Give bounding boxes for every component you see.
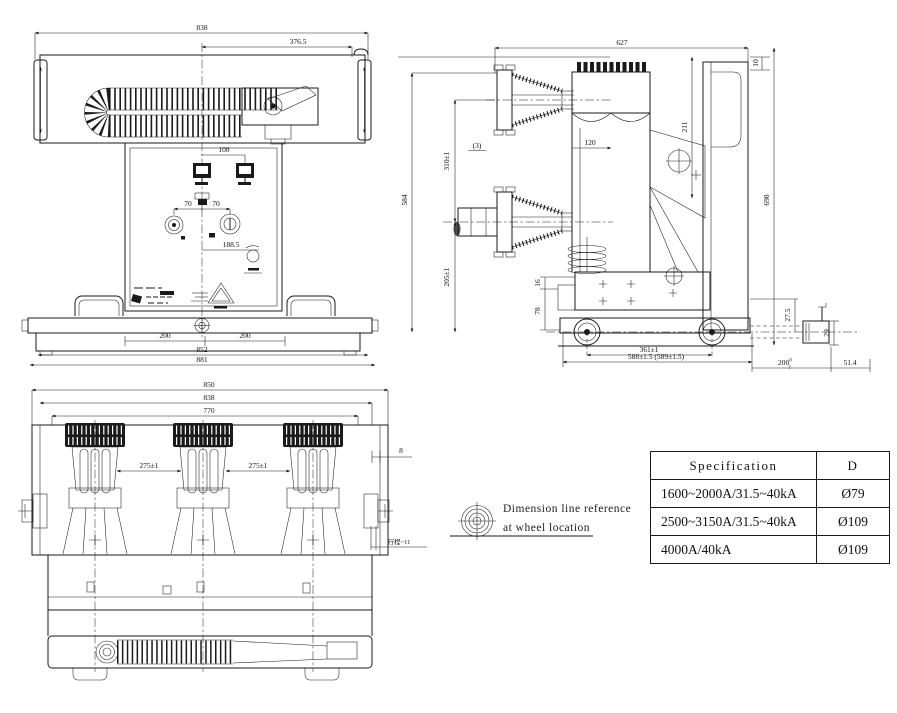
bottom-handle-right: [305, 668, 339, 680]
dim-205: 205±1: [442, 267, 451, 286]
dim-881: 881: [196, 355, 208, 364]
bottom-view-drawing: 850 838 770: [13, 380, 433, 713]
spec-table: Specification D 1600~2000A/31.5~40kA Ø79…: [650, 451, 890, 564]
dim-852: 852: [196, 345, 208, 354]
pole-assembly-3: [281, 420, 345, 672]
spec-table-header-row: Specification D: [651, 452, 890, 480]
dim-188-5: 188.5: [223, 240, 240, 249]
spec-cell-rating: 2500~3150A/31.5~40kA: [651, 508, 817, 536]
knob-left: [165, 216, 185, 240]
bolt-crosses: [599, 280, 677, 305]
contact-spring: [568, 237, 606, 274]
pole-assembly-2: [171, 420, 235, 672]
indicator-window-right: [236, 163, 254, 185]
dim-8: 8: [399, 446, 403, 455]
note-line-2: at wheel location: [503, 522, 590, 534]
nameplate: [131, 288, 174, 304]
spec-table-row: 2500~3150A/31.5~40kA Ø109: [651, 508, 890, 536]
mechanism-box: [558, 266, 710, 310]
lower-bushing: [443, 187, 613, 257]
dim-stroke: 行程~11: [388, 537, 411, 546]
spec-header-d: D: [817, 452, 890, 480]
gusset-plate: [650, 130, 705, 272]
wheel-reference-note: Dimension line reference at wheel locati…: [448, 494, 663, 550]
spec-cell-rating: 4000A/40kA: [651, 536, 817, 564]
pole-pitch-dimensions: 275±1 275±1: [117, 461, 290, 471]
dim-200-right: 200: [239, 331, 251, 340]
dim-10: 10: [751, 59, 760, 67]
bottom-lower-body: [48, 555, 372, 636]
dim-78: 78: [533, 307, 542, 315]
breaker-body: 120: [572, 67, 650, 272]
bottom-view-top-dimensions: 850 838 770: [32, 380, 388, 425]
warning-triangle: [191, 283, 234, 309]
front-view-bottom-dimensions: 200 200 852 881: [30, 331, 375, 365]
bottom-mechanism: [48, 636, 372, 680]
spec-header-specification: Specification: [651, 452, 817, 480]
dim-698: 698: [762, 194, 771, 206]
dim-200-tolerance: 20002: [778, 358, 792, 371]
spec-table-row: 1600~2000A/31.5~40kA Ø79: [651, 480, 890, 508]
side-bracket-right: [364, 494, 393, 528]
dim-29: 29: [822, 329, 831, 337]
dim-16: 16: [533, 279, 542, 287]
dim-376-5: 376.5: [290, 37, 307, 46]
knob-right: [209, 214, 240, 238]
note-line-1: Dimension line reference: [503, 503, 631, 515]
dim-310: 310±1: [442, 151, 451, 170]
dim-627: 627: [616, 38, 628, 47]
bottom-handle-left: [73, 668, 107, 680]
upper-bushing: [486, 65, 613, 135]
dim-200-left: 200: [159, 331, 171, 340]
dim-838: 838: [196, 23, 208, 32]
dim-850: 850: [203, 380, 215, 389]
front-control-panel: 108 70 70: [125, 143, 282, 311]
actuator-assembly: [242, 86, 318, 144]
dim-838-bottom: 838: [203, 393, 215, 402]
engineering-drawing-canvas: 838 376.5: [0, 0, 897, 713]
spec-cell-diameter: Ø79: [817, 480, 890, 508]
spec-cell-diameter: Ø109: [817, 536, 890, 564]
side-view-outer-dimensions: 627 10 698 211 584 310±1 (3) 205±1: [400, 38, 774, 345]
lifting-handle-left: [75, 296, 123, 316]
front-view-drawing: 838 376.5: [10, 3, 412, 377]
side-view-drawing: 627 10 698 211 584 310±1 (3) 205±1: [398, 15, 897, 383]
spec-table-row: 4000A/40kA Ø109: [651, 536, 890, 564]
front-view-top-dimensions: 838 376.5: [35, 23, 368, 59]
front-upper-housing: [34, 49, 371, 144]
lifting-handle-right: [287, 296, 335, 316]
wall-thickness-dim: 8: [372, 446, 412, 463]
dim-108: 108: [218, 145, 230, 154]
dim-70-left: 70: [184, 199, 192, 208]
pole-assembly-1: [63, 420, 127, 672]
spec-cell-rating: 1600~2000A/31.5~40kA: [651, 480, 817, 508]
dim-70-right: 70: [212, 199, 220, 208]
wheel-icon: [458, 502, 496, 540]
dim-27-5: 27.5: [783, 308, 792, 321]
dim-584: 584: [400, 194, 409, 206]
dim-51-4: 51.4: [843, 358, 856, 367]
wheel-base: [546, 318, 860, 346]
dim-588: 588±1.5 (589±1.5): [628, 352, 685, 361]
housing-top-tab: [354, 49, 368, 55]
dim-120: 120: [584, 138, 596, 147]
spec-cell-diameter: Ø109: [817, 508, 890, 536]
dim-211: 211: [680, 121, 689, 132]
dim-275-left: 275±1: [139, 461, 158, 470]
note-3: (3): [473, 141, 482, 150]
dim-275-right: 275±1: [248, 461, 267, 470]
stroke-dimension: 行程~11: [371, 526, 427, 550]
dim-770: 770: [203, 406, 215, 415]
indicator-window-left: [193, 163, 211, 185]
